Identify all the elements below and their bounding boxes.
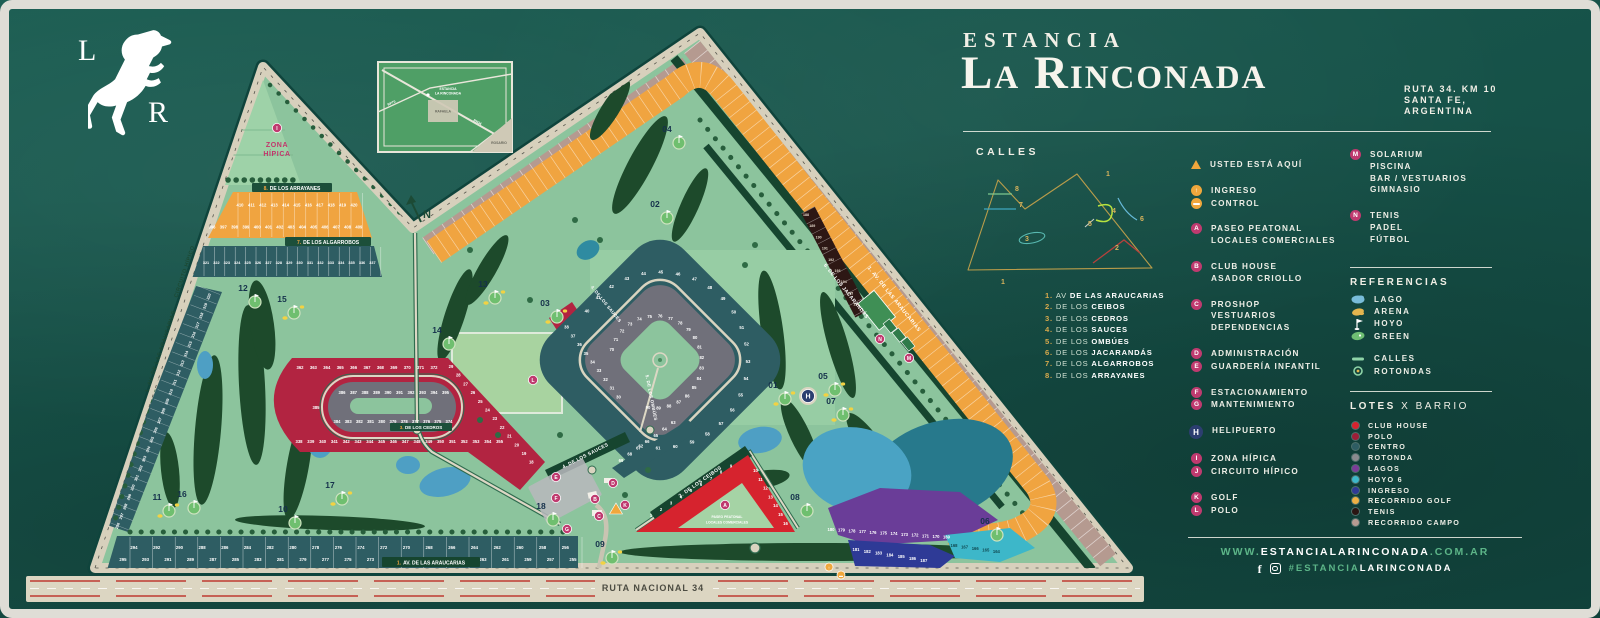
legend-item: MSOLARIUMPISCINABAR / VESTUARIOSGIMNASIO bbox=[1350, 149, 1500, 196]
lot-number: 60 bbox=[673, 444, 678, 449]
lot-number: 170 bbox=[933, 534, 941, 539]
street-name: CEIBOS bbox=[1091, 302, 1125, 311]
legend-marker-G: G bbox=[1191, 399, 1202, 410]
lot-number: 166 bbox=[972, 546, 980, 551]
street-name: SAUCES bbox=[1091, 325, 1127, 334]
estate-title: La Rinconada bbox=[961, 48, 1267, 98]
map-marker-letter: D bbox=[611, 481, 615, 487]
lot-number: 42 bbox=[609, 284, 614, 289]
legend-label: ZONA HÍPICA bbox=[1211, 453, 1277, 465]
svg-text:RAFAELA: RAFAELA bbox=[435, 110, 452, 114]
lote-item: CENTRO bbox=[1352, 442, 1460, 453]
map-marker-letter: B bbox=[593, 497, 597, 503]
lot-number: 281 bbox=[277, 557, 285, 562]
street-number: 2. bbox=[1045, 302, 1056, 311]
svg-text:▬: ▬ bbox=[839, 573, 843, 578]
lot-number: 168 bbox=[951, 543, 959, 548]
lot-number: 277 bbox=[322, 557, 330, 562]
lot-number: 395 bbox=[442, 390, 450, 395]
lot-number: 348 bbox=[414, 439, 422, 444]
svg-text:2: 2 bbox=[1115, 245, 1119, 252]
legend-marker-F: F bbox=[1191, 387, 1202, 398]
street-list-item: 2. DE LOS CEIBOS bbox=[1045, 301, 1164, 312]
legend-item: CPROSHOPVESTUARIOSDEPENDENCIAS bbox=[1191, 299, 1356, 334]
lot-number: 77 bbox=[668, 316, 673, 321]
golf-hole-number: 05 bbox=[818, 371, 828, 381]
street-name: JACARANDÁS bbox=[1091, 348, 1152, 357]
street-number: 4. bbox=[1045, 325, 1056, 334]
lot-number: 20 bbox=[514, 442, 519, 447]
lot-number: 83 bbox=[699, 366, 704, 371]
lot-number: 165 bbox=[982, 548, 990, 553]
lot-number: 270 bbox=[403, 545, 411, 550]
legend-label: ESTACIONAMIENTO bbox=[1211, 387, 1308, 399]
lot-number: 286 bbox=[221, 545, 229, 550]
svg-text:ESTANCIA: ESTANCIA bbox=[439, 87, 457, 91]
lote-color-dot bbox=[1352, 497, 1359, 504]
legend-item: BCLUB HOUSEASADOR CRIOLLO bbox=[1191, 261, 1356, 285]
legend-label: TENISPADELFÚTBOL bbox=[1370, 210, 1410, 245]
lot-number: 275 bbox=[344, 557, 352, 562]
lot-number: 386 bbox=[339, 390, 347, 395]
legend-label: SOLARIUMPISCINABAR / VESTUARIOSGIMNASIO bbox=[1370, 149, 1467, 196]
svg-text:7: 7 bbox=[1019, 202, 1023, 209]
legend-label: INGRESO bbox=[1211, 185, 1257, 197]
svg-text:1.AV. DE LAS ARAUCARIAS: 1.AV. DE LAS ARAUCARIAS bbox=[397, 561, 466, 567]
legend-label: CIRCUITO HÍPICO bbox=[1211, 466, 1299, 478]
lot-number: 278 bbox=[312, 545, 320, 550]
lot-number: 285 bbox=[232, 557, 240, 562]
lot-number: 389 bbox=[373, 390, 381, 395]
legend-marker-E: E bbox=[1191, 361, 1202, 372]
lot-number: 283 bbox=[254, 557, 262, 562]
lot-number: 387 bbox=[350, 390, 358, 395]
legend-item: IZONA HÍPICA bbox=[1191, 453, 1356, 465]
lote-color-dot bbox=[1352, 508, 1359, 515]
svg-text:1: 1 bbox=[1106, 171, 1110, 178]
street-prefix: DE LOS bbox=[1056, 302, 1092, 311]
ruta-nacional-band: RUTA NACIONAL 34 bbox=[26, 576, 1144, 602]
lot-number: 261 bbox=[502, 557, 510, 562]
lot-number: 30 bbox=[616, 394, 621, 399]
golf-hole-number: 04 bbox=[662, 124, 672, 134]
lot-number: 407 bbox=[333, 225, 341, 230]
lot-number: 266 bbox=[448, 545, 456, 550]
street-list-item: 5. DE LOS OMBÚES bbox=[1045, 336, 1164, 347]
lote-label: POLO bbox=[1368, 432, 1394, 441]
lot-number: 53 bbox=[746, 359, 751, 364]
lot-number: 388 bbox=[362, 390, 370, 395]
golf-hole-number: 08 bbox=[790, 492, 800, 502]
legend-marker-C: C bbox=[1191, 299, 1202, 310]
lotes-list: CLUB HOUSEPOLOCENTROROTONDALAGOSHOYO 6IN… bbox=[1352, 420, 1460, 528]
lot-number: 13 bbox=[768, 494, 773, 499]
street-bar-araucarias-bottom: 1.AV. DE LAS ARAUCARIAS bbox=[382, 557, 480, 567]
street-list-item: 1. AV DE LAS ARAUCARIAS bbox=[1045, 290, 1164, 301]
lot-number: 366 bbox=[350, 365, 358, 370]
referencia-label: GREEN bbox=[1374, 332, 1410, 341]
lot-number: 16 bbox=[783, 521, 788, 526]
lot-number: 185 bbox=[898, 554, 906, 559]
calles-diagram: 1 1 8 7 3 4 5 6 2 bbox=[955, 158, 1165, 303]
lot-number: 385 bbox=[313, 405, 321, 410]
lot-number: 187 bbox=[920, 558, 928, 563]
lot-number: 78 bbox=[678, 320, 683, 325]
lot-number: 176 bbox=[870, 530, 878, 535]
lot-number: 169 bbox=[943, 535, 951, 540]
lot-number: 177 bbox=[859, 529, 867, 534]
lot-number: 21 bbox=[507, 434, 512, 439]
lot-number: 273 bbox=[367, 557, 375, 562]
lot-number: 69 bbox=[619, 458, 624, 463]
referencia-item: CALLES bbox=[1350, 353, 1432, 365]
rotondas-icon bbox=[1350, 365, 1366, 377]
legend-marker-D: D bbox=[1191, 348, 1202, 359]
map-marker-letter: N bbox=[878, 337, 882, 343]
legend-label: GUARDERÍA INFANTIL bbox=[1211, 361, 1321, 373]
svg-text:3.DE LOS CEDROS: 3.DE LOS CEDROS bbox=[400, 425, 443, 430]
lot-number: 37 bbox=[571, 333, 576, 338]
lot-number: 34 bbox=[590, 360, 595, 365]
lot-number: 355 bbox=[496, 439, 504, 444]
referencia-label: CALLES bbox=[1374, 354, 1416, 363]
lot-number: 342 bbox=[343, 439, 351, 444]
street-bar-algarrobos: 7.DE LOS ALGARROBOS bbox=[285, 237, 371, 246]
referencia-label: HOYO bbox=[1374, 319, 1404, 328]
lot-number: 291 bbox=[164, 557, 172, 562]
lot-number: 86 bbox=[685, 393, 690, 398]
legend-marker-▬: ▬ bbox=[1191, 198, 1202, 209]
legend-marker-H: H bbox=[1189, 425, 1203, 439]
svg-text:8: 8 bbox=[1015, 186, 1019, 193]
lot-number: 26 bbox=[471, 390, 476, 395]
legend-marker-J: J bbox=[1191, 466, 1202, 477]
lot-number: 45 bbox=[658, 270, 663, 275]
golf-hole-number: 03 bbox=[540, 298, 550, 308]
lot-number: 52 bbox=[744, 342, 749, 347]
lot-number: 47 bbox=[692, 277, 697, 282]
lot-number: 29 bbox=[449, 364, 454, 369]
brand-logo: L R bbox=[66, 26, 206, 166]
legend-item: ↑INGRESO bbox=[1191, 185, 1356, 197]
lot-number: 189 bbox=[809, 224, 815, 228]
lot-number: 410 bbox=[237, 203, 245, 208]
lot-number: 287 bbox=[209, 557, 217, 562]
referencia-label: ROTONDAS bbox=[1374, 367, 1432, 376]
lot-number: 370 bbox=[404, 365, 412, 370]
lot-number: 63 bbox=[671, 420, 676, 425]
golf-hole-number: 07 bbox=[826, 396, 836, 406]
street-name: ARRAYANES bbox=[1091, 371, 1145, 380]
street-number: 8. bbox=[1045, 371, 1056, 380]
lot-number: 264 bbox=[471, 545, 479, 550]
svg-text:ROSARIO: ROSARIO bbox=[491, 141, 507, 145]
lot-number: 57 bbox=[719, 421, 724, 426]
lot-number: 404 bbox=[299, 225, 307, 230]
lot-number: 405 bbox=[310, 225, 318, 230]
lote-label: TENIS bbox=[1368, 507, 1396, 516]
lote-item: HOYO 6 bbox=[1352, 474, 1460, 485]
golf-hole-number: 06 bbox=[980, 516, 990, 526]
lot-number: 70 bbox=[609, 347, 614, 352]
legend-marker-↑: ↑ bbox=[1191, 185, 1202, 196]
lote-label: LAGOS bbox=[1368, 464, 1400, 473]
lot-number: 12 bbox=[763, 486, 768, 491]
lot-number: 49 bbox=[721, 296, 726, 301]
legend-item: USTED ESTÁ AQUÍ bbox=[1191, 159, 1356, 171]
lot-number: 90 bbox=[646, 405, 651, 410]
svg-text:7.DE LOS ALGARROBOS: 7.DE LOS ALGARROBOS bbox=[297, 240, 360, 246]
map-marker-letter: H bbox=[805, 393, 810, 400]
legend-item: DADMINISTRACIÓN bbox=[1191, 348, 1356, 360]
lot-number: 394 bbox=[431, 390, 439, 395]
lot-number: 338 bbox=[296, 439, 304, 444]
divider bbox=[1350, 391, 1492, 392]
lot-number: 340 bbox=[319, 439, 327, 444]
divider bbox=[1188, 537, 1522, 538]
lot-number: 76 bbox=[658, 314, 663, 319]
lot-number: 167 bbox=[961, 545, 969, 550]
golf-hole-number: 14 bbox=[432, 325, 442, 335]
map-marker-letter: M bbox=[907, 356, 911, 362]
lot-number: 262 bbox=[494, 545, 502, 550]
lote-label: ROTONDA bbox=[1368, 453, 1413, 462]
lot-number: 182 bbox=[864, 549, 872, 554]
street-name: ALGARROBOS bbox=[1091, 359, 1154, 368]
legend-facilities: MSOLARIUMPISCINABAR / VESTUARIOSGIMNASIO… bbox=[1350, 149, 1500, 247]
legend-item: GMANTENIMIENTO bbox=[1191, 399, 1356, 411]
referencia-item: ARENA bbox=[1350, 305, 1432, 317]
referencias-list: LAGOARENAHOYOGREENCALLESROTONDAS bbox=[1350, 293, 1432, 377]
usted-esta-aqui-icon bbox=[1191, 160, 1201, 169]
lot-number: 50 bbox=[731, 310, 736, 315]
street-bar-cedros: 3.DE LOS CEDROS bbox=[390, 423, 452, 431]
svg-text:↑: ↑ bbox=[828, 565, 831, 571]
social-row: f #ESTANCIALARINCONADA bbox=[1188, 563, 1522, 574]
legend-label: PROSHOPVESTUARIOSDEPENDENCIAS bbox=[1211, 299, 1290, 334]
legend-item: LPOLO bbox=[1191, 505, 1356, 517]
lot-number: 293 bbox=[142, 557, 150, 562]
street-list-item: 8. DE LOS ARRAYANES bbox=[1045, 370, 1164, 381]
street-number: 3. bbox=[1045, 314, 1056, 323]
lot-number: 15 bbox=[778, 512, 783, 517]
estate-address: RUTA 34. KM 10 SANTA FE, ARGENTINA bbox=[1404, 84, 1497, 117]
lot-number: 178 bbox=[849, 528, 857, 533]
lot-number: 43 bbox=[625, 276, 630, 281]
legend-item: HHELIPUERTO bbox=[1191, 425, 1356, 439]
lot-number: 368 bbox=[377, 365, 385, 370]
lot-number: 390 bbox=[385, 390, 393, 395]
legend-label: GOLF bbox=[1211, 492, 1239, 504]
lot-number: 75 bbox=[647, 314, 652, 319]
golf-hole-number: 11 bbox=[153, 492, 162, 502]
lot-number: 417 bbox=[316, 203, 324, 208]
svg-text:8.DE LOS ARRAYANES: 8.DE LOS ARRAYANES bbox=[264, 186, 321, 192]
lot-number: 31 bbox=[610, 386, 615, 391]
street-list-item: 6. DE LOS JACARANDÁS bbox=[1045, 347, 1164, 358]
lot-number: 33 bbox=[597, 368, 602, 373]
lote-label: INGRESO bbox=[1368, 486, 1410, 495]
lot-number: 393 bbox=[419, 390, 427, 395]
street-list-item: 4. DE LOS SAUCES bbox=[1045, 324, 1164, 335]
calles-street-list: 1. AV DE LAS ARAUCARIAS2. DE LOS CEIBOS3… bbox=[1045, 290, 1164, 381]
lote-item: TENIS bbox=[1352, 506, 1460, 517]
lot-number: 180 bbox=[828, 527, 836, 532]
lot-number: 172 bbox=[912, 533, 920, 538]
lot-number: 420 bbox=[351, 203, 359, 208]
instagram-icon[interactable] bbox=[1270, 563, 1281, 574]
lote-color-dot bbox=[1352, 454, 1359, 461]
lot-number: 268 bbox=[426, 545, 434, 550]
lote-item: RECORRIDO GOLF bbox=[1352, 496, 1460, 507]
lot-number: 364 bbox=[323, 365, 331, 370]
lot-number: 258 bbox=[539, 545, 547, 550]
lot-number: 82 bbox=[699, 355, 704, 360]
map-marker-letter: G bbox=[565, 527, 569, 533]
lot-number: 419 bbox=[339, 203, 347, 208]
lot-number: 44 bbox=[641, 271, 646, 276]
lot-number: 36 bbox=[577, 342, 582, 347]
street-prefix: DE LOS bbox=[1056, 348, 1092, 357]
lote-color-dot bbox=[1352, 433, 1359, 440]
lote-label: CENTRO bbox=[1368, 442, 1406, 451]
legend-item: APASEO PEATONALLOCALES COMERCIALES bbox=[1191, 223, 1356, 247]
lot-number: 280 bbox=[289, 545, 297, 550]
referencia-item: LAGO bbox=[1350, 293, 1432, 305]
legend-item: NTENISPADELFÚTBOL bbox=[1350, 210, 1500, 245]
lot-number: 363 bbox=[310, 365, 318, 370]
legend-label: CONTROL bbox=[1211, 198, 1260, 210]
poster: RUTA NACIONAL 34 bbox=[0, 0, 1600, 618]
lot-number: 371 bbox=[417, 365, 425, 370]
lot-number: 406 bbox=[322, 225, 330, 230]
lot-number: 46 bbox=[676, 271, 681, 276]
calles-icon bbox=[1350, 353, 1366, 365]
street-prefix: DE LOS bbox=[1056, 337, 1092, 346]
legend-label: CLUB HOUSEASADOR CRIOLLO bbox=[1211, 261, 1302, 285]
lot-number: 347 bbox=[402, 439, 410, 444]
lot-number: 276 bbox=[335, 545, 343, 550]
facebook-icon[interactable]: f bbox=[1258, 564, 1262, 574]
lot-number: 400 bbox=[254, 225, 262, 230]
lot-number: 190 bbox=[816, 235, 822, 239]
hashtag[interactable]: #ESTANCIALARINCONADA bbox=[1289, 563, 1453, 574]
label-paseo: PASEO PEATONALLOCALES COMERCIALES bbox=[706, 515, 749, 525]
lote-item: LAGOS bbox=[1352, 463, 1460, 474]
lot-number: 372 bbox=[431, 365, 439, 370]
golf-hole-number: 16 bbox=[177, 489, 187, 499]
svg-text:5: 5 bbox=[1088, 221, 1092, 228]
lot-number: 88 bbox=[667, 404, 672, 409]
green-icon bbox=[1350, 330, 1366, 342]
lot-number: 259 bbox=[524, 557, 532, 562]
street-name: DE LAS ARAUCARIAS bbox=[1070, 291, 1164, 300]
website-link[interactable]: WWW.ESTANCIALARINCONADA.COM.AR bbox=[1188, 546, 1522, 558]
lot-number: 23 bbox=[492, 416, 497, 421]
lot-number: 381 bbox=[367, 419, 375, 424]
lot-number: 72 bbox=[620, 328, 625, 333]
referencia-item: ROTONDAS bbox=[1350, 365, 1432, 377]
lot-number: 392 bbox=[408, 390, 416, 395]
ruta-label: RUTA NACIONAL 34 bbox=[602, 583, 704, 593]
lot-number: 391 bbox=[396, 390, 404, 395]
legend-label: HELIPUERTO bbox=[1212, 425, 1277, 439]
lote-color-dot bbox=[1352, 443, 1359, 450]
lot-number: 22 bbox=[500, 425, 505, 430]
golf-hole-number: 09 bbox=[595, 539, 605, 549]
legend-marker-N: N bbox=[1350, 210, 1361, 221]
lot-number: 295 bbox=[119, 557, 127, 562]
lot-number: 71 bbox=[614, 337, 619, 342]
street-prefix: DE LOS bbox=[1056, 314, 1092, 323]
lot-number: 173 bbox=[901, 532, 909, 537]
lot-number: 403 bbox=[288, 225, 296, 230]
lot-number: 24 bbox=[485, 408, 490, 413]
lot-number: 351 bbox=[449, 439, 457, 444]
street-number: 5. bbox=[1045, 337, 1056, 346]
lote-color-dot bbox=[1352, 519, 1359, 526]
golf-hole-number: 02 bbox=[650, 199, 660, 209]
lot-number: 418 bbox=[328, 203, 336, 208]
lot-number: 65 bbox=[653, 433, 658, 438]
divider bbox=[1350, 267, 1492, 268]
lot-number: 339 bbox=[307, 439, 315, 444]
legend-marker-K: K bbox=[1191, 492, 1202, 503]
lot-number: 79 bbox=[686, 327, 691, 332]
lote-label: CLUB HOUSE bbox=[1368, 421, 1429, 430]
lot-number: 398 bbox=[231, 225, 239, 230]
lote-item: CLUB HOUSE bbox=[1352, 420, 1460, 431]
lot-number: 256 bbox=[562, 545, 570, 550]
golf-hole-number: 13 bbox=[478, 279, 488, 289]
lot-number: 408 bbox=[344, 225, 352, 230]
lot-number: 263 bbox=[479, 557, 487, 562]
lot-number: 87 bbox=[676, 399, 681, 404]
map-marker-letter: A bbox=[723, 503, 727, 509]
lot-number: 409 bbox=[355, 225, 363, 230]
lot-number: 25 bbox=[478, 399, 483, 404]
lot-number: 56 bbox=[730, 408, 735, 413]
street-prefix: DE LOS bbox=[1056, 325, 1092, 334]
divider bbox=[963, 131, 1491, 132]
lot-number: 164 bbox=[993, 549, 1001, 554]
lot-number: 284 bbox=[244, 545, 252, 550]
lot-number: 38 bbox=[564, 325, 569, 330]
svg-text:4: 4 bbox=[1112, 208, 1116, 215]
street-prefix: DE LOS bbox=[1056, 359, 1092, 368]
lot-number: 174 bbox=[891, 531, 899, 536]
lotes-heading: LOTES X BARRIO bbox=[1350, 401, 1469, 412]
golf-hole-number: 10 bbox=[278, 504, 288, 514]
arena-icon bbox=[1350, 306, 1366, 318]
golf-hole-number: 18 bbox=[536, 501, 546, 511]
golf-hole-number: 17 bbox=[325, 480, 335, 490]
lot-number: 35 bbox=[584, 351, 589, 356]
lot-number: 257 bbox=[547, 557, 555, 562]
map-marker-letter: K bbox=[623, 503, 627, 509]
lot-number: 55 bbox=[738, 393, 743, 398]
golf-hole-number: 12 bbox=[238, 283, 248, 293]
lot-number: 191 bbox=[822, 247, 828, 251]
lot-number: 40 bbox=[585, 308, 590, 313]
lot-number: 384 bbox=[334, 419, 342, 424]
lot-number: 397 bbox=[220, 225, 228, 230]
referencia-item: HOYO bbox=[1350, 318, 1432, 330]
lote-color-dot bbox=[1352, 422, 1359, 429]
lot-number: 353 bbox=[473, 439, 481, 444]
lot-number: 58 bbox=[705, 432, 710, 437]
lot-number: 349 bbox=[425, 439, 433, 444]
